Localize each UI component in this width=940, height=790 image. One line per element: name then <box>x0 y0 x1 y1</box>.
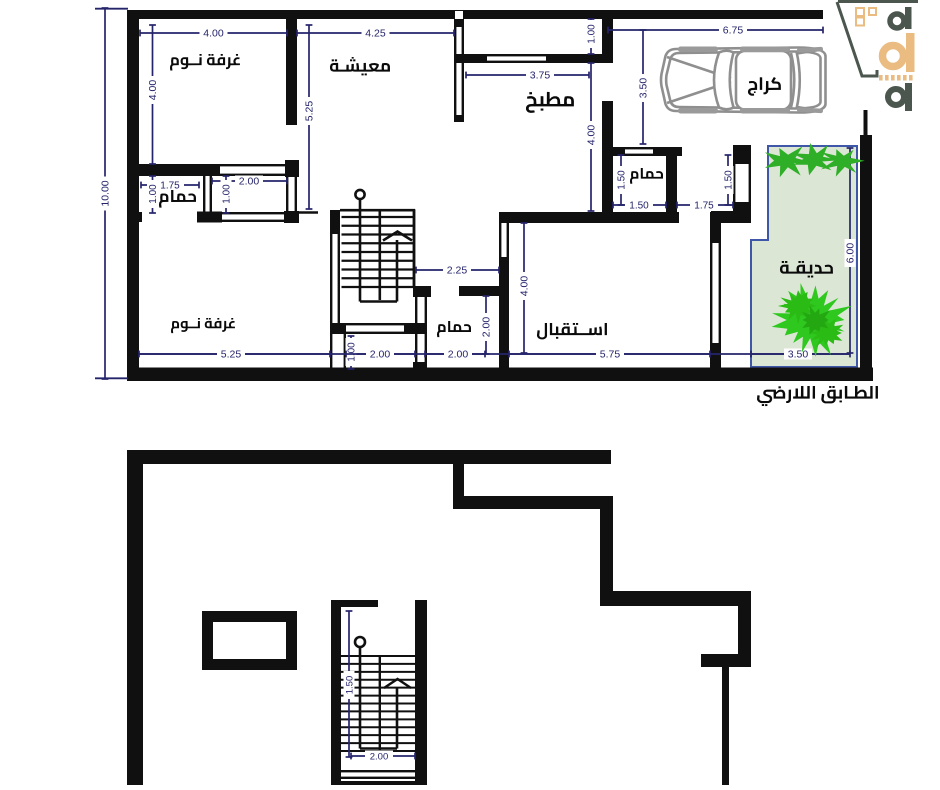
svg-text:4.00: 4.00 <box>203 28 224 40</box>
svg-text:1.50: 1.50 <box>724 170 735 190</box>
svg-text:2.00: 2.00 <box>370 349 391 361</box>
svg-text:10.00: 10.00 <box>100 180 112 206</box>
svg-text:6.00: 6.00 <box>845 243 857 264</box>
svg-text:1.00: 1.00 <box>148 184 159 204</box>
svg-text:3.50: 3.50 <box>788 349 809 361</box>
svg-text:6.75: 6.75 <box>723 25 744 37</box>
svg-text:1.00: 1.00 <box>222 184 233 204</box>
svg-text:3.75: 3.75 <box>530 70 551 82</box>
svg-text:1.50: 1.50 <box>629 201 649 212</box>
svg-text:4.00: 4.00 <box>519 276 531 297</box>
svg-text:5.25: 5.25 <box>221 349 242 361</box>
svg-text:1.75: 1.75 <box>694 201 714 212</box>
svg-text:5.25: 5.25 <box>304 101 316 122</box>
svg-text:4.25: 4.25 <box>365 28 386 40</box>
svg-text:1.50: 1.50 <box>345 676 356 695</box>
svg-text:2.00: 2.00 <box>370 752 389 763</box>
svg-text:1.50: 1.50 <box>617 170 628 190</box>
svg-text:1.00: 1.00 <box>587 24 598 44</box>
svg-text:3.50: 3.50 <box>638 78 650 99</box>
svg-text:2.00: 2.00 <box>448 349 469 361</box>
svg-text:4.00: 4.00 <box>147 80 159 101</box>
svg-text:2.25: 2.25 <box>447 265 468 277</box>
svg-text:2.00: 2.00 <box>239 176 260 188</box>
svg-text:2.00: 2.00 <box>481 317 493 338</box>
svg-text:1.00: 1.00 <box>347 342 358 362</box>
svg-text:1.75: 1.75 <box>160 181 180 192</box>
svg-text:5.75: 5.75 <box>600 349 621 361</box>
svg-text:4.00: 4.00 <box>586 125 598 146</box>
